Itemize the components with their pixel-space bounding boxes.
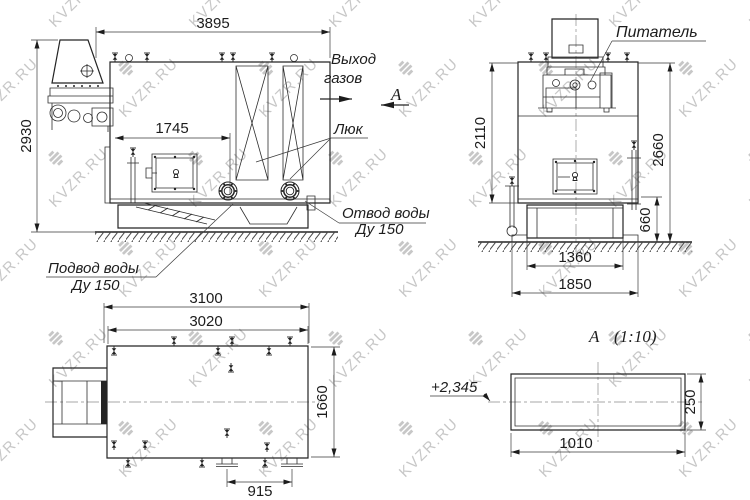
- watermark-logo-icon: [47, 150, 64, 167]
- valve-icon: [269, 53, 275, 62]
- water-flange-icon: [281, 182, 299, 200]
- vent-cap-icon: [126, 55, 133, 62]
- bolt-dot: [65, 85, 67, 87]
- watermark-logo-icon: [607, 150, 624, 167]
- section-a-view: А (1:10) +2,345 250 1010: [430, 327, 706, 457]
- bolt-dot: [97, 85, 99, 87]
- label-hatch: Люк: [333, 121, 364, 138]
- drive-gear-icon: [68, 110, 80, 122]
- valve-icon: [144, 53, 150, 62]
- door-lock-icon: [572, 172, 577, 180]
- valve-icon: [287, 337, 293, 346]
- watermark-logo-icon: [537, 420, 554, 437]
- watermark-text: KVZR.RU: [0, 235, 42, 301]
- section-scale: (1:10): [614, 327, 657, 346]
- dim-text-660: 660: [637, 207, 654, 232]
- door-bolt: [574, 191, 576, 193]
- door-bolt: [555, 161, 557, 163]
- water-flange-icon: [219, 182, 237, 200]
- section-marker-a: А: [588, 327, 600, 346]
- watermark-logo-icon: [47, 330, 64, 347]
- drain-elbow-icon: [507, 226, 517, 236]
- valve-icon: [112, 53, 118, 62]
- valve-icon: [266, 346, 272, 355]
- door-bolt: [555, 190, 557, 192]
- door-bolt: [593, 161, 595, 163]
- watermark-logo-icon: [397, 240, 414, 257]
- top-view: 3100 3020 1660 915: [45, 290, 340, 500]
- valve-icon: [171, 337, 177, 346]
- level-mark-arrow: [484, 394, 490, 401]
- watermark-text: KVZR.RU: [326, 0, 392, 31]
- watermark-logo-icon: [117, 240, 134, 257]
- dim-text-1850: 1850: [558, 276, 591, 293]
- watermark-logo-icon: [397, 60, 414, 77]
- dim-text-1745: 1745: [155, 120, 188, 137]
- dim-text-1010: 1010: [559, 435, 592, 452]
- door-bolt: [154, 156, 156, 158]
- bolt-dot: [81, 85, 83, 87]
- feeder-gate-bar: [101, 381, 107, 424]
- valve-icon: [130, 148, 136, 157]
- watermark-text: KVZR.RU: [0, 55, 42, 121]
- valve-icon: [631, 141, 637, 150]
- dim-text-1660: 1660: [314, 385, 331, 418]
- front-view-contours: [518, 19, 638, 238]
- side-view-ground-hatch: [95, 232, 338, 242]
- label-gas-outlet-2: газов: [324, 70, 362, 87]
- technical-drawing-page: KVZR.RUKVZR.RUKVZR.RUKVZR.RUKVZR.RUKVZR.…: [0, 0, 750, 500]
- valve-icon: [199, 458, 205, 467]
- watermark-logo-icon: [257, 240, 274, 257]
- valve-icon: [111, 441, 117, 450]
- drive-gear-icon: [84, 114, 93, 123]
- watermark-text: KVZR.RU: [0, 415, 42, 481]
- dim-text-3020: 3020: [189, 313, 222, 330]
- watermark-text: KVZR.RU: [746, 0, 750, 31]
- bolt-dot: [57, 85, 59, 87]
- drive-gear-icon: [54, 109, 63, 118]
- valve-icon: [528, 53, 534, 62]
- door-bolt: [574, 160, 576, 162]
- door-lock-icon: [173, 169, 178, 177]
- vent-cap-icon: [291, 55, 298, 62]
- valve-icon: [219, 53, 225, 62]
- watermark-logo-icon: [257, 420, 274, 437]
- drive-gear-icon: [97, 112, 107, 122]
- view-marker-a: А: [390, 85, 402, 104]
- watermark-text: KVZR.RU: [46, 0, 112, 31]
- valve-icon: [264, 443, 270, 452]
- bolt-dot: [73, 85, 75, 87]
- valve-icon: [111, 346, 117, 355]
- dim-text-3895: 3895: [196, 15, 229, 32]
- dim-text-250: 250: [682, 389, 699, 414]
- valve-icon: [224, 429, 230, 438]
- label-water-outlet-1: Отвод воды: [342, 205, 430, 222]
- valve-icon: [624, 53, 630, 62]
- valve-icon: [230, 53, 236, 62]
- valve-icon: [228, 363, 234, 372]
- door-bolt: [174, 156, 176, 158]
- valve-icon: [605, 53, 611, 62]
- watermark-logo-icon: [397, 420, 414, 437]
- dim-text-2660: 2660: [650, 133, 667, 166]
- dim-text-1360: 1360: [558, 249, 591, 266]
- label-water-outlet-2: Ду 150: [354, 221, 404, 238]
- label-feeder: Питатель: [616, 24, 698, 41]
- door-bolt: [154, 188, 156, 190]
- door-bolt: [593, 190, 595, 192]
- dim-text-3100: 3100: [189, 290, 222, 307]
- watermark-text: KVZR.RU: [466, 0, 532, 31]
- watermark-logo-icon: [327, 330, 344, 347]
- feeder-gear-icon: [553, 80, 560, 87]
- door-bolt: [174, 188, 176, 190]
- dim-text-2930: 2930: [18, 119, 35, 152]
- label-water-inlet-1: Подвод воды: [48, 260, 139, 277]
- feeder-gear-icon: [588, 81, 596, 89]
- dim-text-2110: 2110: [472, 117, 489, 149]
- boiler-drawing: KVZR.RUKVZR.RUKVZR.RUKVZR.RUKVZR.RUKVZR.…: [0, 0, 750, 500]
- bolt-dot: [89, 85, 91, 87]
- watermark-logo-icon: [117, 420, 134, 437]
- dim-text-915: 915: [247, 483, 272, 500]
- door-bolt: [193, 188, 195, 190]
- label-gas-outlet-1: Выход: [331, 51, 376, 68]
- watermark-logo-icon: [677, 420, 694, 437]
- label-water-inlet-2: Ду 150: [70, 277, 120, 294]
- watermark-logo-icon: [467, 150, 484, 167]
- level-mark-text: +2,345: [431, 379, 478, 396]
- door-bolt: [193, 156, 195, 158]
- watermark-logo-icon: [677, 60, 694, 77]
- front-view: 2110 2660 660 1360 1850 Питатель: [472, 14, 698, 297]
- watermark-logo-icon: [467, 330, 484, 347]
- watermark-logo-icon: [187, 330, 204, 347]
